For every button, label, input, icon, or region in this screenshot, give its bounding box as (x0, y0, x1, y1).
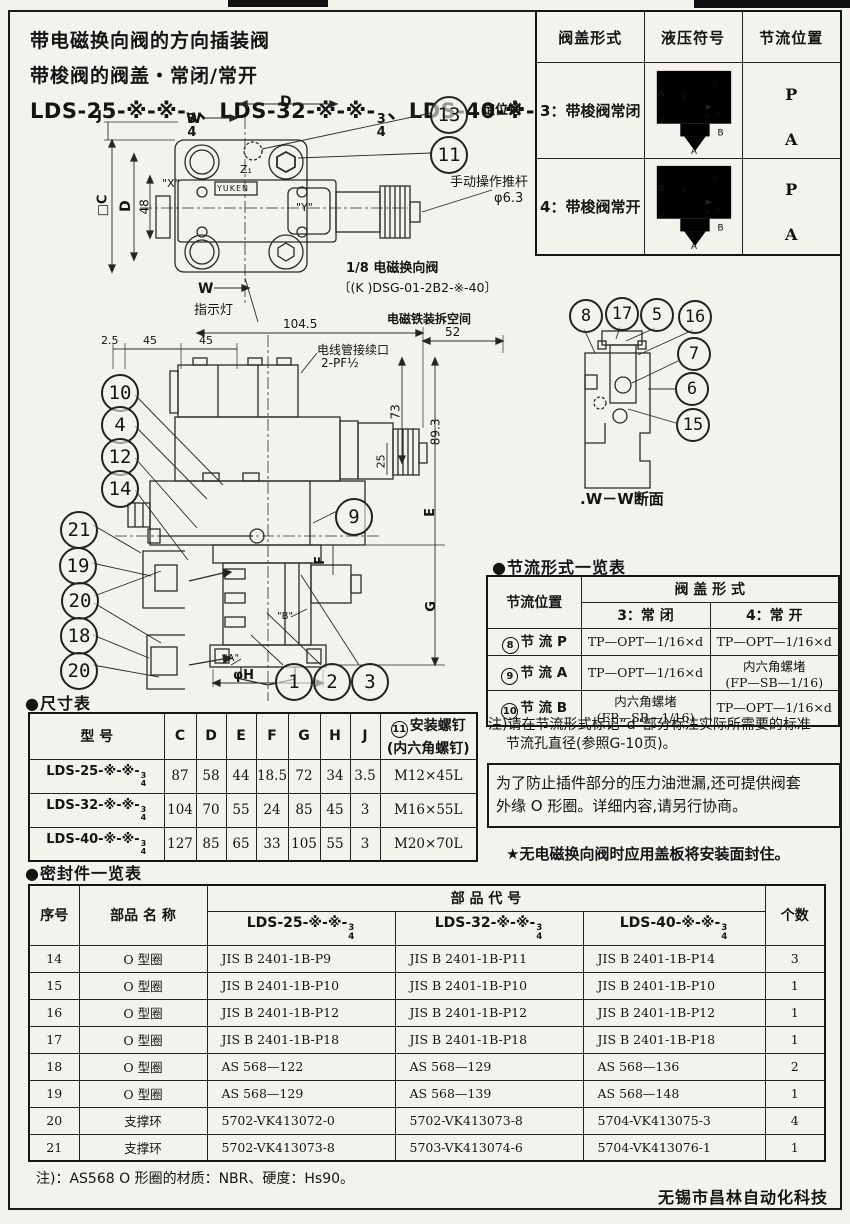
pos-p: P (743, 180, 841, 199)
callout-9: 9 (335, 498, 373, 536)
sym-port-y: Y (714, 206, 721, 216)
part-code-header: 部 品 代 号 (207, 885, 765, 911)
callout-8: 8 (569, 299, 603, 333)
callout-17: 17 (605, 297, 639, 331)
table-row: 20支撑环 5702-VK413072-05702-VK413073-85704… (29, 1107, 825, 1134)
model-header-32: LDS-32-※-※-34 (395, 911, 583, 945)
throttle-form-table: 节流位置 阀 盖 形 式 3：常 闭 4：常 开 8节 流 P TP—OPT—1… (486, 575, 840, 727)
part-name-header: 部品 名 称 (79, 885, 207, 945)
company-footer: 无锡市昌林自动化科技 (658, 1184, 828, 1208)
port-x-label: "X" (162, 178, 180, 191)
cell: TP—OPT—1/16×d (581, 655, 710, 690)
dim-45b: 45 (199, 335, 213, 348)
col-header-throttle-pos: 节流位置 (742, 11, 841, 63)
cell: 44 (226, 759, 256, 793)
dim-c: □C (96, 195, 111, 217)
dim-table-title: ●尺寸表 (25, 690, 91, 714)
cell: 127 (164, 827, 196, 861)
cell: 34 (320, 759, 350, 793)
throttle-pos-header: 节流位置 (487, 576, 581, 628)
col-j: J (350, 713, 380, 759)
dim-j: J (97, 110, 102, 125)
dim-89-3: 89.3 (429, 419, 443, 446)
sym-port-bout: B (717, 128, 723, 138)
cell: 24 (256, 793, 288, 827)
front-view-drawing: 电磁铁装拆空间 52 104.5 2.5 45 45 电线管接续口 2-PF½ … (55, 313, 535, 713)
table-row: 17O 型圈 JIS B 2401-1B-P18JIS B 2401-1B-P1… (29, 1026, 825, 1053)
qty-header: 个数 (765, 885, 825, 945)
callout-7: 7 (677, 337, 711, 371)
cell: 85 (288, 793, 320, 827)
sym-port-p: P (682, 188, 687, 198)
port-y-label: "Y" (296, 202, 313, 215)
dim-e: E (424, 508, 439, 517)
cover-form-4: 4：带梭阀常开 (536, 159, 644, 255)
cover-form-table: 阀盖形式 液压符号 节流位置 3：带梭阀常闭 (535, 10, 842, 256)
cell: 3 (350, 827, 380, 861)
table-row: 18O 型圈 AS 568—122AS 568—129AS 568—136 2 (29, 1053, 825, 1080)
sym-port-b: b (712, 79, 718, 89)
circled-9: 9 (501, 668, 518, 685)
col-c: C (164, 713, 196, 759)
sym-port-z: Z (703, 114, 709, 124)
col-h: H (320, 713, 350, 759)
port-z-label: Z₁ (240, 164, 252, 177)
seal-parts-table: 序号 部品 名 称 部 品 代 号 个数 LDS-25-※-※-34 LDS-3… (28, 884, 826, 1162)
circled-8: 8 (502, 637, 519, 654)
cell: 105 (288, 827, 320, 861)
callout-19: 19 (59, 547, 97, 585)
dim-g: G (425, 601, 440, 612)
pin-label: 定位销 (482, 104, 521, 119)
callout-18: 18 (60, 617, 98, 655)
solenoid-valve-label: 1/8 电磁换向阀 (346, 262, 438, 277)
callout-15: 15 (676, 408, 710, 442)
pos-p: P (743, 85, 841, 104)
table-row: 21支撑环 5702-VK413073-85703-VK413074-65704… (29, 1134, 825, 1161)
callout-3: 3 (351, 663, 389, 701)
sym-port-left: B (657, 185, 664, 195)
callout-2: 2 (313, 663, 351, 701)
sym-port-b: b (712, 175, 718, 185)
sym-port-z: Z (703, 210, 709, 220)
col-closed: 3：常 闭 (581, 602, 710, 628)
table-row: 19O 型圈 AS 568—129AS 568—139AS 568—148 1 (29, 1080, 825, 1107)
model-header-40: LDS-40-※-※-34 (583, 911, 765, 945)
cell: M12×45L (380, 759, 477, 793)
cell: 87 (164, 759, 196, 793)
dim-d-left: D (118, 200, 134, 212)
dim-phi-h: φH (233, 669, 254, 684)
col-screw: 11安装螺钉 (内六角螺钉) (380, 713, 477, 759)
cell: 18.5 (256, 759, 288, 793)
col-g: G (288, 713, 320, 759)
sn-header: 序号 (29, 885, 79, 945)
seal-material-note: 注)：AS568 O 形圈的材质：NBR、硬度：Hs90。 (36, 1168, 354, 1188)
throttle-row-p: 8节 流 P (487, 628, 581, 655)
sym-port-y: Y (714, 110, 721, 120)
cell: TP—OPT—1/16×d (581, 628, 710, 655)
conduit-size: 2-PF½ (321, 357, 359, 371)
throttle-row-a: 9节 流 A (487, 655, 581, 690)
section-view-drawing: 8 17 5 16 7 6 15 .W－W断面 (550, 283, 845, 523)
port-b-label: "B" (277, 611, 293, 623)
cell: 104 (164, 793, 196, 827)
hydraulic-symbol-closed: b A P X Z Y B A (644, 63, 742, 159)
cell: 3.5 (350, 759, 380, 793)
port-a-label: "A" (223, 653, 239, 665)
cell: 85 (196, 827, 226, 861)
catalog-page: 带电磁换向阀的方向插装阀 带梭阀的阀盖・常闭/常开 LDS-25-※-※-34、… (0, 0, 850, 1224)
page-subtitle: 带梭阀的阀盖・常闭/常开 (30, 61, 577, 88)
cover-form-3: 3：带梭阀常闭 (536, 63, 644, 159)
dim-48: 48 (139, 199, 153, 214)
star-note: ★无电磁换向阀时应用盖板将安装面封住。 (506, 843, 789, 864)
callout-13: 13 (430, 96, 468, 134)
dim-w-top: W (186, 111, 201, 127)
manual-rod-label: 手动操作推杆 (450, 176, 528, 191)
callout-1: 1 (275, 663, 313, 701)
dim-f: F (314, 556, 329, 565)
table-row: 16O 型圈 JIS B 2401-1B-P12JIS B 2401-1B-P1… (29, 999, 825, 1026)
callout-14: 14 (101, 470, 139, 508)
sym-port-aout: A (691, 147, 697, 156)
callout-20b: 20 (60, 652, 98, 690)
cell: TP—OPT—1/16×d (710, 628, 839, 655)
cell: 45 (320, 793, 350, 827)
manual-rod-dia: φ6.3 (494, 192, 523, 207)
circled-11: 11 (391, 721, 408, 738)
model-col-header: 型 号 (29, 713, 164, 759)
dim-d-top: D (280, 94, 292, 110)
throttle-note: 注)请在节流形式标记“d”部分标注实际所需要的标准 节流孔直径(参照G-10页)… (488, 716, 840, 754)
dim-w-bottom: W (198, 281, 213, 297)
col-e: E (226, 713, 256, 759)
seal-table-title: ●密封件一览表 (25, 860, 142, 884)
throttle-positions: P A (742, 159, 841, 255)
cell: 33 (256, 827, 288, 861)
callout-20a: 20 (61, 582, 99, 620)
cell: 72 (288, 759, 320, 793)
callout-5: 5 (640, 298, 674, 332)
cell: 65 (226, 827, 256, 861)
col-open: 4：常 开 (710, 602, 839, 628)
sym-port-aout: A (691, 242, 697, 251)
top-view-drawing: 13 11 定位销 手动操作推杆 φ6.3 D W W 指示灯 J □C D 4… (90, 92, 530, 324)
cell: M20×70L (380, 827, 477, 861)
callout-16: 16 (678, 300, 712, 334)
sym-port-bout: B (717, 224, 723, 234)
col-header-hyd-symbol: 液压符号 (644, 11, 742, 63)
sym-port-left: A (657, 89, 664, 99)
dim-73: 73 (390, 404, 404, 419)
callout-21: 21 (60, 511, 98, 549)
cover-form-header: 阀 盖 形 式 (581, 576, 839, 602)
callout-11: 11 (430, 136, 468, 174)
model-lds40: LDS-40-※-※-34 (29, 827, 164, 861)
sym-port-x: X (659, 210, 665, 220)
sym-port-x: X (659, 114, 665, 124)
page-title: 带电磁换向阀的方向插装阀 (30, 26, 577, 53)
cell: 70 (196, 793, 226, 827)
callout-6: 6 (675, 372, 709, 406)
model-header-25: LDS-25-※-※-34 (207, 911, 395, 945)
col-header-cover-form: 阀盖形式 (536, 11, 644, 63)
dimension-table: 型 号 C D E F G H J 11安装螺钉 (内六角螺钉) LDS-25-… (28, 712, 478, 862)
section-caption: .W－W断面 (580, 491, 664, 508)
scan-artifact (694, 0, 850, 8)
cell: 58 (196, 759, 226, 793)
table-row: 14O 型圈 JIS B 2401-1B-P9JIS B 2401-1B-P11… (29, 945, 825, 972)
leak-note-box: 为了防止插件部分的压力油泄漏,还可提供阀套 外缘 O 形圈。详细内容,请另行协商… (487, 763, 841, 828)
pos-a: A (743, 225, 841, 244)
model-lds25: LDS-25-※-※-34 (29, 759, 164, 793)
dim-52: 52 (445, 326, 460, 340)
cell: 55 (226, 793, 256, 827)
col-f: F (256, 713, 288, 759)
throttle-positions: P A (742, 63, 841, 159)
solenoid-valve-model: 〔(K )DSG-01-2B2-※-40〕 (338, 281, 497, 295)
dim-25: 25 (376, 454, 389, 468)
col-d: D (196, 713, 226, 759)
hydraulic-symbol-open: b B P X Z Y B A (644, 159, 742, 255)
sym-port-p: P (682, 92, 687, 102)
brand-label: YUKEN (217, 184, 249, 193)
dim-2-5: 2.5 (101, 335, 119, 348)
cell: 55 (320, 827, 350, 861)
pos-a: A (743, 130, 841, 149)
cell: 3 (350, 793, 380, 827)
model-lds32: LDS-32-※-※-34 (29, 793, 164, 827)
table-row: 15O 型圈 JIS B 2401-1B-P10JIS B 2401-1B-P1… (29, 972, 825, 999)
scan-artifact (228, 0, 328, 7)
cell: 内六角螺堵(FP—SB—1/16) (710, 655, 839, 690)
dim-45a: 45 (143, 335, 157, 348)
dim-104-5: 104.5 (283, 318, 317, 332)
cell: M16×55L (380, 793, 477, 827)
